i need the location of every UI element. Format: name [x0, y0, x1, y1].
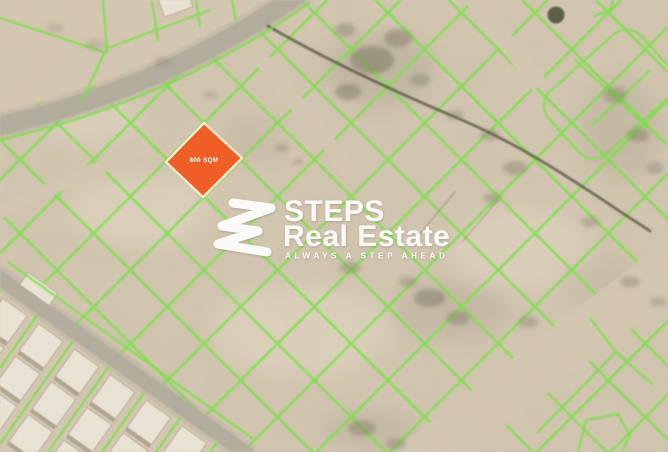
plot-area-label: 800 SQM	[189, 157, 218, 164]
watermark-brand-line2: Real Estate	[283, 220, 450, 253]
plot-marker: 800 SQM	[166, 123, 242, 197]
overlay-layer: 800 SQM STEPS Real Estate ALWAYS A STEP …	[0, 0, 668, 452]
watermark: STEPS Real Estate ALWAYS A STEP AHEAD	[218, 195, 450, 261]
steps-logo-icon	[218, 203, 271, 252]
listing-map-image[interactable]: 800 SQM STEPS Real Estate ALWAYS A STEP …	[0, 0, 668, 452]
watermark-tagline: ALWAYS A STEP AHEAD	[285, 252, 448, 261]
